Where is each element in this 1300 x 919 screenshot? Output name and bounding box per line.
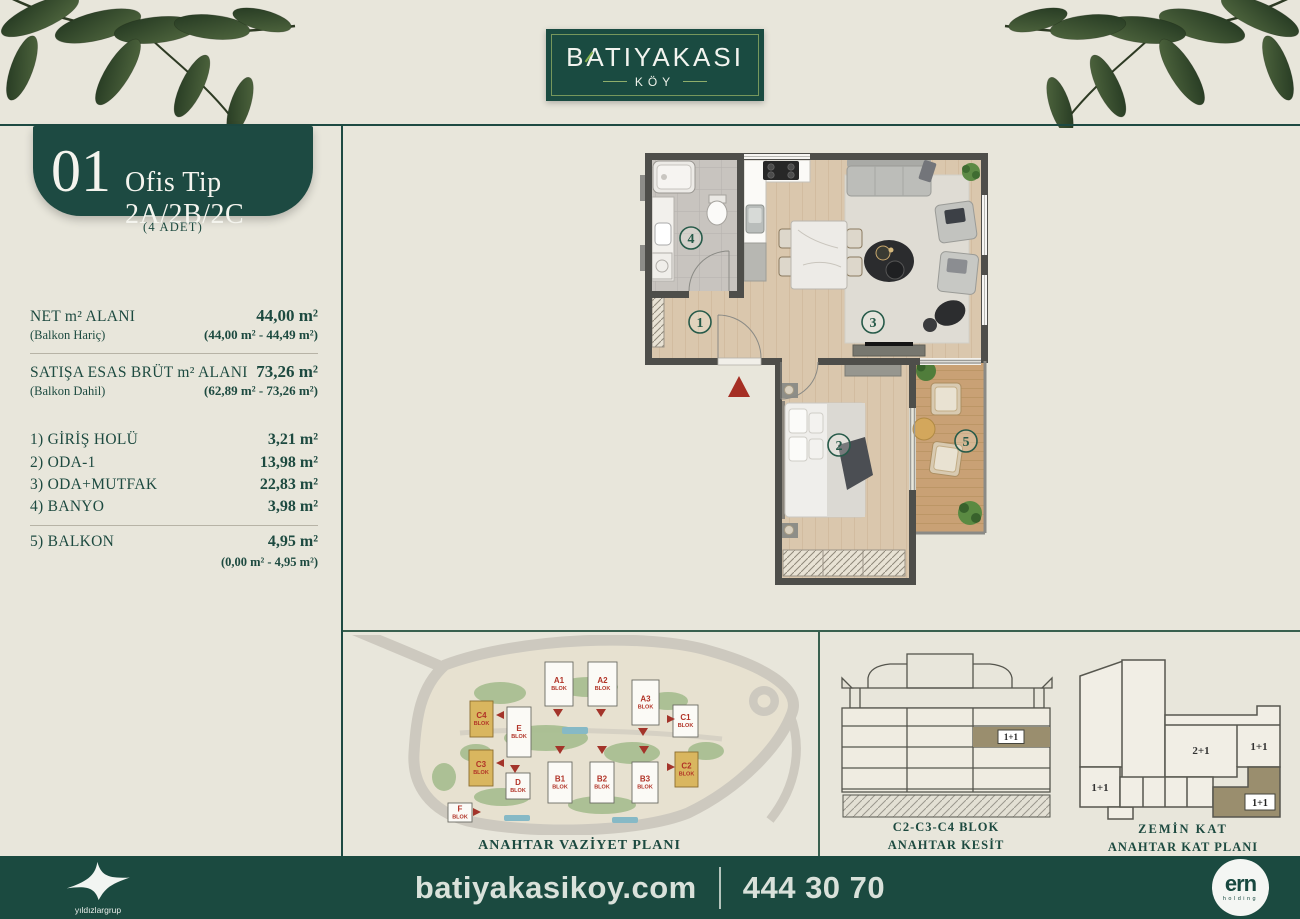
footer-separator [719,867,721,909]
floor-plan: 1 2 3 4 5 [633,145,998,595]
holding-logo-subtext: holding [1223,896,1258,902]
room-row: 4) BANYO3,98 m² [30,496,318,518]
room-list: 1) GİRİŞ HOLÜ3,21 m²2) ODA-113,98 m²3) O… [30,429,318,553]
wardrobe [783,550,905,576]
balkon-range: (0,00 m² - 4,95 m²) [30,555,318,570]
section-caption-line2: ANAHTAR KESİT [826,838,1066,853]
area-group: SATIŞA ESAS BRÜT m² ALANI73,26 m²(Balkon… [30,353,318,399]
project-logo-title: BATIYAKASI [566,44,744,70]
olive-branch-left-icon [0,0,300,128]
room-marker-5: 5 [963,435,970,450]
unit-title-badge: 01 Ofis Tip 2A/2B/2C [33,126,313,216]
entrance-marker [728,376,750,397]
brochure-page: BATIYAKASI KÖY 01 Ofis Tip 2A/2B/2C (4 A… [0,0,1300,919]
room-row: 3) ODA+MUTFAK22,83 m² [30,474,318,496]
area-summary: NET m² ALANI44,00 m²(Balkon Hariç)(44,00… [30,306,318,399]
unit-number: 01 [51,126,111,216]
section-base [843,795,1050,817]
hall-cabinet [652,297,664,347]
room-marker-2: 2 [836,439,843,454]
site-plan: A1BLOKA2BLOKA3BLOKC1BLOKC4BLOKEBLOKC3BLO… [350,635,810,835]
room-row: 2) ODA-113,98 m² [30,451,318,473]
unit-count-note: (4 ADET) [33,220,313,235]
room-marker-1: 1 [697,316,704,331]
key-plan-caption-line2: ANAHTAR KAT PLANI [1075,840,1291,855]
project-logo: BATIYAKASI KÖY [546,29,764,101]
area-row: SATIŞA ESAS BRÜT m² ALANI73,26 m² [30,362,318,382]
key-unit-1plus1-highlighted: 1+1 [1252,798,1268,809]
area-row: NET m² ALANI44,00 m² [30,306,318,326]
holding-logo: ern holding [1212,859,1269,916]
area-group: NET m² ALANI44,00 m²(Balkon Hariç)(44,00… [30,306,318,343]
section-caption-line1: C2-C3-C4 BLOK [826,820,1066,835]
room-marker-3: 3 [870,316,877,331]
unit-data-panel: NET m² ALANI44,00 m²(Balkon Hariç)(44,00… [30,306,318,570]
project-logo-subtitle-row: KÖY [603,75,707,89]
project-logo-subtitle: KÖY [635,75,675,89]
key-plan-caption-line1: ZEMİN KAT [1075,822,1291,837]
section-structure [842,654,1052,792]
bottom-strip-divider [343,630,1300,632]
area-subrow: (Balkon Hariç)(44,00 m² - 44,49 m²) [30,327,318,343]
project-logo-frame: BATIYAKASI KÖY [551,34,759,96]
left-panel-divider [341,126,343,857]
site-plan-caption: ANAHTAR VAZİYET PLANI [341,838,818,854]
key-unit-2plus1: 2+1 [1192,745,1209,757]
site-section-divider [818,631,820,857]
website-link[interactable]: batiyakasikoy.com [415,870,697,906]
room-row: 5) BALKON4,95 m² [30,525,318,553]
logo-rule-right [683,81,707,82]
phone-number[interactable]: 444 30 70 [743,870,885,906]
key-unit-1plus1-left: 1+1 [1091,782,1108,794]
area-subrow: (Balkon Dahil)(62,89 m² - 73,26 m²) [30,383,318,399]
logo-rule-left [603,81,627,82]
key-unit-1plus1-right: 1+1 [1250,741,1267,753]
room-row: 1) GİRİŞ HOLÜ3,21 m² [30,429,318,451]
section-unit-label: 1+1 [1004,732,1019,742]
room-marker-4: 4 [688,232,695,247]
olive-branch-right-icon [1000,0,1300,128]
footer-contact: batiyakasikoy.com 444 30 70 [0,856,1300,919]
footer-bar: yıldızlargrup batiyakasikoy.com 444 30 7… [0,856,1300,919]
holding-logo-text: ern [1225,873,1256,895]
section-drawing: 1+1 [830,640,1065,820]
key-floor-plan: 2+1 1+1 1+1 1+1 [1075,648,1290,823]
